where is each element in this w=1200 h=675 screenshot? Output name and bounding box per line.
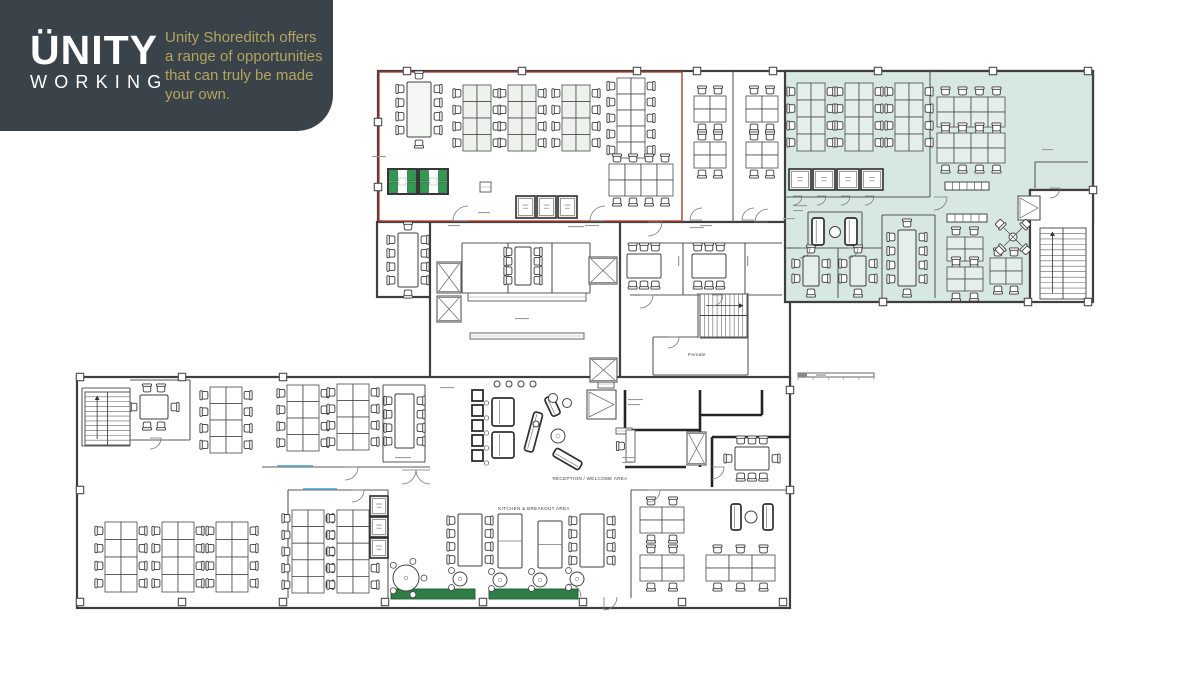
- chair: [327, 530, 335, 539]
- chair: [736, 583, 745, 591]
- chair: [607, 129, 615, 138]
- chair: [835, 121, 843, 130]
- chair: [716, 243, 725, 251]
- chair: [749, 86, 758, 94]
- chair: [607, 97, 615, 106]
- chair: [384, 396, 392, 405]
- chair: [396, 98, 404, 107]
- chair: [327, 421, 335, 430]
- chair: [417, 410, 425, 419]
- sofa: [492, 432, 514, 458]
- chair: [628, 154, 637, 162]
- chair: [651, 281, 660, 289]
- chair: [765, 86, 774, 94]
- staircase: [85, 392, 130, 445]
- desk-cluster: [607, 78, 655, 158]
- chair: [139, 526, 147, 535]
- chair: [765, 170, 774, 178]
- chair: [925, 104, 933, 113]
- chair: [885, 121, 893, 130]
- chair: [327, 437, 335, 446]
- chair: [504, 276, 512, 285]
- booth-pod: [813, 169, 835, 190]
- chair: [327, 514, 335, 523]
- chair: [569, 543, 577, 552]
- booth-pod: [370, 517, 388, 537]
- chair: [668, 545, 677, 553]
- chair: [282, 547, 290, 556]
- chair: [749, 170, 758, 178]
- chair: [171, 402, 179, 411]
- chair: [371, 564, 379, 573]
- logo-wordmark-working: WORKING: [30, 72, 168, 93]
- chair: [534, 247, 542, 256]
- chair: [958, 165, 967, 173]
- chair: [371, 437, 379, 446]
- chair: [371, 388, 379, 397]
- meeting-table: [692, 243, 726, 289]
- booth-pod: [370, 538, 388, 558]
- chair: [759, 545, 768, 553]
- chair: [822, 274, 830, 283]
- chair: [403, 290, 412, 298]
- chair: [668, 583, 677, 591]
- chair: [941, 123, 950, 131]
- meeting-table: [498, 514, 522, 568]
- chair: [787, 138, 795, 147]
- chair: [992, 123, 1001, 131]
- chair: [152, 579, 160, 588]
- chair: [538, 122, 546, 131]
- chair: [668, 497, 677, 505]
- chair: [919, 274, 927, 283]
- chair: [885, 104, 893, 113]
- chair: [902, 289, 911, 297]
- brand-card: ÜNITY WORKING Unity Shoreditch offers a …: [0, 0, 333, 131]
- chair: [639, 281, 648, 289]
- chair: [277, 389, 285, 398]
- chair: [152, 526, 160, 535]
- chair: [485, 529, 493, 538]
- chair: [387, 249, 395, 258]
- tagline-line: a range of opportunities: [165, 47, 323, 66]
- chair: [887, 260, 895, 269]
- chair: [875, 121, 883, 130]
- chair: [387, 276, 395, 285]
- chair: [827, 138, 835, 147]
- meeting-table: [538, 521, 562, 568]
- chair: [646, 497, 655, 505]
- chair: [704, 243, 713, 251]
- chair: [396, 112, 404, 121]
- chair: [196, 544, 204, 553]
- chair: [453, 105, 461, 114]
- chair: [941, 165, 950, 173]
- chair: [822, 259, 830, 268]
- chair: [200, 407, 208, 416]
- chair: [787, 104, 795, 113]
- chair: [569, 556, 577, 565]
- chair: [244, 407, 252, 416]
- chair: [504, 257, 512, 266]
- chair: [447, 555, 455, 564]
- tagline: Unity Shoreditch offers a range of oppor…: [165, 28, 323, 104]
- chair: [277, 405, 285, 414]
- chair: [969, 227, 978, 235]
- chair: [835, 104, 843, 113]
- chair: [277, 438, 285, 447]
- chair: [434, 84, 442, 93]
- chair: [569, 529, 577, 538]
- chair: [498, 89, 506, 98]
- chair: [747, 436, 756, 444]
- chair: [787, 87, 795, 96]
- chair: [759, 583, 768, 591]
- chair: [142, 384, 151, 392]
- chair: [887, 246, 895, 255]
- chair: [282, 514, 290, 523]
- chair: [827, 87, 835, 96]
- chair: [196, 526, 204, 535]
- chair: [504, 266, 512, 275]
- chair: [835, 138, 843, 147]
- chair: [607, 529, 615, 538]
- chair: [919, 246, 927, 255]
- chair: [839, 259, 847, 268]
- slide-canvas: FemaleRECEPTION / WELCOME AREAKITCHEN & …: [0, 0, 1200, 675]
- chair: [504, 247, 512, 256]
- chair: [206, 561, 214, 570]
- chair: [387, 235, 395, 244]
- loose-chair: [616, 441, 624, 450]
- chair: [485, 555, 493, 564]
- chair: [152, 544, 160, 553]
- chair: [647, 145, 655, 154]
- chair: [969, 257, 978, 265]
- chair: [538, 105, 546, 114]
- chair: [434, 112, 442, 121]
- chair: [647, 81, 655, 90]
- chair: [958, 123, 967, 131]
- chair: [434, 126, 442, 135]
- chair: [713, 170, 722, 178]
- chair: [693, 243, 702, 251]
- chair: [282, 530, 290, 539]
- room-label: Female: [688, 352, 706, 358]
- chair: [396, 126, 404, 135]
- chair: [736, 545, 745, 553]
- sofa: [731, 504, 741, 530]
- sofa: [492, 398, 514, 426]
- chair: [607, 113, 615, 122]
- chair: [647, 129, 655, 138]
- booth-pod: [537, 196, 556, 218]
- chair: [713, 583, 722, 591]
- chair: [447, 542, 455, 551]
- chair: [250, 526, 258, 535]
- chair: [156, 384, 165, 392]
- chair: [951, 293, 960, 301]
- chair: [447, 516, 455, 525]
- chair: [95, 544, 103, 553]
- chair: [607, 516, 615, 525]
- chair: [569, 516, 577, 525]
- sofa: [763, 504, 773, 530]
- chair: [660, 198, 669, 206]
- booth-pod: [516, 196, 535, 218]
- chair: [417, 437, 425, 446]
- chair: [485, 516, 493, 525]
- chair: [713, 545, 722, 553]
- chair: [827, 121, 835, 130]
- chair: [647, 113, 655, 122]
- chair: [196, 579, 204, 588]
- sofa: [812, 218, 824, 245]
- chair: [806, 245, 815, 253]
- chair: [919, 260, 927, 269]
- chair: [139, 561, 147, 570]
- chair: [498, 105, 506, 114]
- chair: [887, 232, 895, 241]
- chair: [421, 249, 429, 258]
- chair: [885, 138, 893, 147]
- chair: [538, 138, 546, 147]
- chair: [736, 473, 745, 481]
- chair: [371, 421, 379, 430]
- chair: [139, 579, 147, 588]
- chair: [853, 289, 862, 297]
- chair: [951, 257, 960, 265]
- chair: [552, 138, 560, 147]
- chair: [651, 243, 660, 251]
- lift-shaft: [590, 358, 617, 382]
- chair: [644, 198, 653, 206]
- chair: [152, 561, 160, 570]
- chair: [724, 454, 732, 463]
- chair: [951, 227, 960, 235]
- chair: [704, 281, 713, 289]
- chair: [421, 276, 429, 285]
- chair: [534, 276, 542, 285]
- tagline-line: Unity Shoreditch offers: [165, 28, 323, 47]
- locker-unit: [419, 169, 448, 194]
- chair: [552, 89, 560, 98]
- chair: [639, 243, 648, 251]
- chair: [975, 87, 984, 95]
- scale-bar: [798, 373, 874, 380]
- chair: [403, 222, 412, 230]
- chair: [869, 274, 877, 283]
- chair: [713, 124, 722, 132]
- chair: [975, 123, 984, 131]
- chair: [697, 170, 706, 178]
- chair: [142, 422, 151, 430]
- chair: [736, 436, 745, 444]
- chair: [196, 561, 204, 570]
- desk-cluster: [706, 545, 775, 591]
- meeting-table: [627, 243, 661, 289]
- chair: [697, 124, 706, 132]
- chair: [453, 122, 461, 131]
- room-label: RECEPTION / WELCOME AREA: [552, 476, 628, 481]
- chair: [693, 281, 702, 289]
- booth-pod: [370, 496, 388, 516]
- chair: [612, 198, 621, 206]
- chair: [282, 564, 290, 573]
- chair: [139, 544, 147, 553]
- chair: [327, 580, 335, 589]
- chair: [371, 404, 379, 413]
- chair: [250, 561, 258, 570]
- chair: [206, 544, 214, 553]
- chair: [644, 154, 653, 162]
- chair: [668, 535, 677, 543]
- chair: [925, 138, 933, 147]
- locker-strip: [945, 182, 989, 190]
- lift-shaft: [587, 390, 616, 419]
- chair: [156, 422, 165, 430]
- chair: [759, 473, 768, 481]
- booth-pod: [837, 169, 859, 190]
- chair: [697, 132, 706, 140]
- room-label: KITCHEN & BREAKOUT AREA: [498, 506, 570, 511]
- chair: [628, 243, 637, 251]
- chair: [792, 274, 800, 283]
- chair: [993, 286, 1002, 294]
- chair: [250, 579, 258, 588]
- chair: [384, 410, 392, 419]
- chair: [941, 87, 950, 95]
- chair: [282, 580, 290, 589]
- chair: [387, 262, 395, 271]
- chair: [887, 274, 895, 283]
- chair: [498, 122, 506, 131]
- chair: [925, 121, 933, 130]
- chair: [1009, 286, 1018, 294]
- locker-strip: [947, 214, 987, 222]
- chair: [919, 232, 927, 241]
- chair: [969, 293, 978, 301]
- logo-wordmark-unity: ÜNITY: [30, 30, 168, 71]
- chair: [747, 473, 756, 481]
- chair: [592, 138, 600, 147]
- chair: [827, 104, 835, 113]
- chair: [552, 122, 560, 131]
- chair: [592, 122, 600, 131]
- booth-pod: [789, 169, 811, 190]
- chair: [1009, 248, 1018, 256]
- chair: [660, 154, 669, 162]
- chair: [646, 583, 655, 591]
- chair: [485, 542, 493, 551]
- chair: [538, 89, 546, 98]
- booth-pod: [558, 196, 577, 218]
- chair: [749, 124, 758, 132]
- chair: [875, 104, 883, 113]
- chair: [885, 87, 893, 96]
- chair: [327, 547, 335, 556]
- chair: [421, 262, 429, 271]
- chair: [875, 87, 883, 96]
- chair: [869, 259, 877, 268]
- chair: [371, 580, 379, 589]
- chair: [206, 526, 214, 535]
- chair: [327, 404, 335, 413]
- unity-working-logo: ÜNITY WORKING: [30, 30, 168, 93]
- chair: [713, 132, 722, 140]
- chair: [839, 274, 847, 283]
- chair: [607, 543, 615, 552]
- chair: [95, 579, 103, 588]
- chair: [498, 138, 506, 147]
- chair: [244, 424, 252, 433]
- chair: [396, 84, 404, 93]
- staircase: [700, 294, 747, 337]
- chair: [552, 105, 560, 114]
- chair: [592, 89, 600, 98]
- chair: [384, 423, 392, 432]
- staircase: [1040, 228, 1086, 299]
- chair: [421, 235, 429, 244]
- chair: [414, 140, 423, 148]
- chair: [607, 145, 615, 154]
- locker-unit: [388, 169, 417, 194]
- chair: [250, 544, 258, 553]
- chair: [453, 138, 461, 147]
- chair: [607, 81, 615, 90]
- chair: [975, 165, 984, 173]
- chair: [835, 87, 843, 96]
- chair: [592, 105, 600, 114]
- lift-shaft: [437, 262, 461, 293]
- chair: [697, 86, 706, 94]
- chair: [992, 165, 1001, 173]
- chair: [646, 535, 655, 543]
- sofa: [845, 218, 857, 245]
- chair: [434, 98, 442, 107]
- chair: [806, 289, 815, 297]
- chair: [414, 71, 423, 79]
- chair: [958, 87, 967, 95]
- chair: [765, 132, 774, 140]
- lift-shaft: [687, 432, 706, 465]
- chair: [327, 388, 335, 397]
- lift-shaft: [589, 257, 617, 284]
- chair: [792, 259, 800, 268]
- tagline-line: that can truly be made: [165, 66, 323, 85]
- chair: [200, 391, 208, 400]
- chair: [534, 266, 542, 275]
- chair: [327, 564, 335, 573]
- chair: [628, 281, 637, 289]
- chair: [417, 423, 425, 432]
- lift-shaft: [1018, 196, 1040, 220]
- chair: [902, 219, 911, 227]
- chair: [95, 526, 103, 535]
- chair: [244, 440, 252, 449]
- chair: [607, 556, 615, 565]
- chair: [759, 436, 768, 444]
- chair: [612, 154, 621, 162]
- chair: [787, 121, 795, 130]
- chair: [384, 437, 392, 446]
- chair: [716, 281, 725, 289]
- chair: [647, 97, 655, 106]
- chair: [453, 89, 461, 98]
- tagline-line: your own.: [165, 85, 323, 104]
- lift-shaft: [437, 296, 461, 322]
- chair: [277, 422, 285, 431]
